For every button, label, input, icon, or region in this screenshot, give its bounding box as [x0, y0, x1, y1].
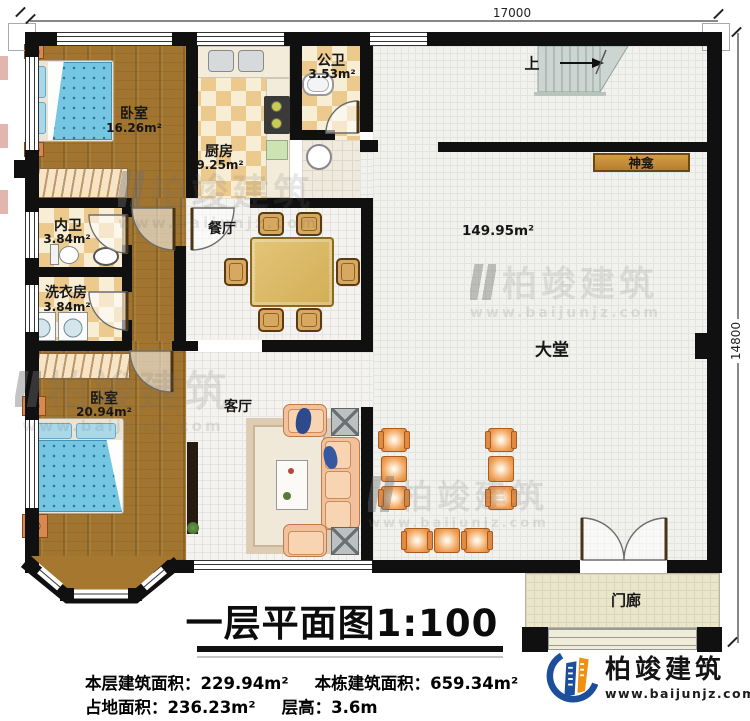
company-logo: 柏竣建筑 www.baijunjz.com	[542, 650, 750, 708]
room-area-public-bath: 3.53m²	[308, 67, 355, 81]
door-arc	[582, 518, 624, 560]
company-name: 柏竣建筑	[605, 657, 750, 683]
door-arc	[89, 215, 127, 253]
stat-label: 本层建筑面积：	[85, 674, 201, 693]
stats-line-2: 占地面积：236.23m²层高：3.6m	[85, 694, 378, 718]
room-area-kitchen: 9.25m²	[196, 158, 243, 172]
door-arc	[130, 351, 172, 392]
porch-label: 门廊	[611, 590, 641, 611]
stats-line-1: 本层建筑面积：229.94m²本栋建筑面积：659.34m²	[85, 670, 518, 694]
drawing-title-scale: 1:100	[376, 602, 499, 645]
door-arc	[89, 292, 127, 330]
top-dimension-label: 17000	[490, 6, 534, 20]
room-label-dining: 餐厅	[208, 218, 236, 238]
stat-label: 占地面积：	[85, 698, 168, 717]
room-label-living: 客厅	[224, 396, 252, 416]
stat-label: 层高：	[282, 698, 332, 717]
drawing-title-text: 一层平面图	[186, 602, 376, 645]
door-arc	[132, 208, 174, 250]
stat-value: 659.34m²	[430, 674, 518, 693]
company-url: www.baijunjz.com	[605, 686, 750, 701]
stat-value: 3.6m	[331, 698, 377, 717]
room-label-hall: 大堂	[535, 336, 569, 361]
right-dimension-label: 14800	[729, 319, 743, 363]
room-label-laundry: 洗衣房	[45, 282, 87, 302]
room-area-bedroom2: 20.94m²	[76, 405, 132, 419]
floor-plan-canvas: 17000 14800	[0, 0, 750, 721]
stairs-up-label: 上	[524, 53, 539, 74]
title-underline-thin	[197, 656, 503, 658]
title-underline-thick	[197, 646, 503, 652]
room-area-inner-bath: 3.84m²	[43, 232, 90, 246]
company-logo-icon	[542, 650, 598, 708]
room-label-bedroom1: 卧室	[120, 103, 148, 123]
room-area-laundry: 3.84m²	[43, 300, 90, 314]
room-area-hall: 149.95m²	[462, 223, 534, 239]
room-area-bedroom1: 16.26m²	[106, 121, 162, 135]
door-arc	[624, 518, 666, 560]
door-arc	[326, 101, 358, 133]
stat-value: 229.94m²	[201, 674, 289, 693]
shrine-label: 神龛	[628, 153, 653, 172]
stat-value: 236.23m²	[168, 698, 256, 717]
stat-label: 本栋建筑面积：	[315, 674, 431, 693]
drawing-title: 一层平面图1:100	[186, 593, 499, 647]
